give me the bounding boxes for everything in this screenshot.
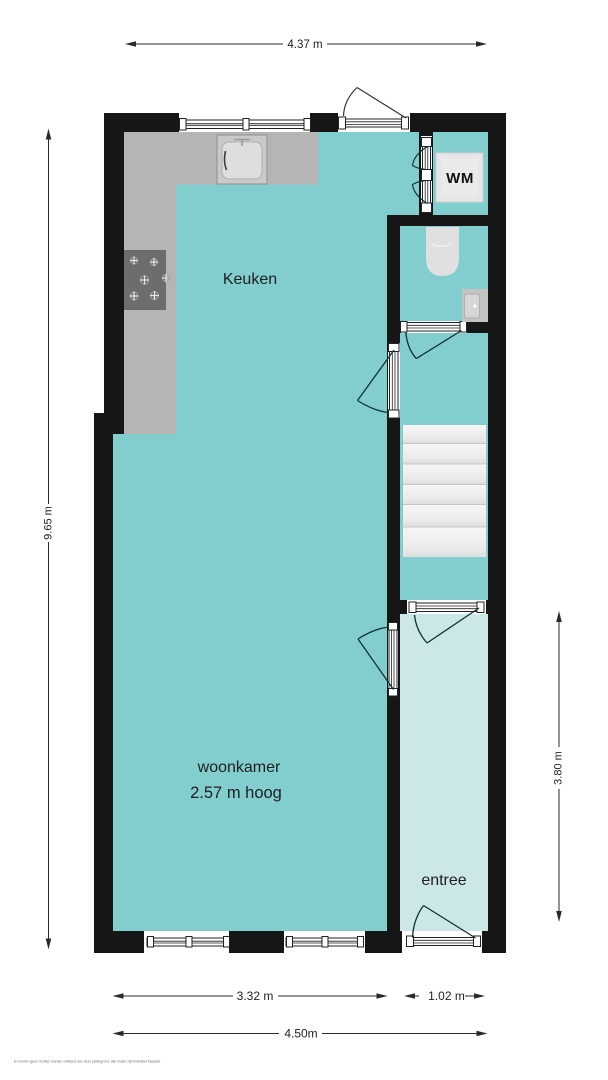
svg-text:1.02 m: 1.02 m	[428, 989, 465, 1003]
svg-text:WM: WM	[446, 170, 474, 187]
svg-text:3.32 m: 3.32 m	[237, 989, 274, 1003]
svg-text:9.65 m: 9.65 m	[43, 506, 55, 540]
svg-text:2.57 m hoog: 2.57 m hoog	[190, 784, 282, 802]
svg-text:4.37 m: 4.37 m	[287, 39, 322, 51]
svg-text:Keuken: Keuken	[223, 271, 277, 288]
svg-text:entree: entree	[421, 872, 466, 889]
svg-text:Er kunnen geen rechten worden: Er kunnen geen rechten worden ontleend a…	[14, 1060, 161, 1064]
svg-text:woonkamer: woonkamer	[197, 759, 281, 776]
svg-text:3.80 m: 3.80 m	[553, 751, 565, 785]
svg-text:4.50m: 4.50m	[284, 1026, 317, 1040]
